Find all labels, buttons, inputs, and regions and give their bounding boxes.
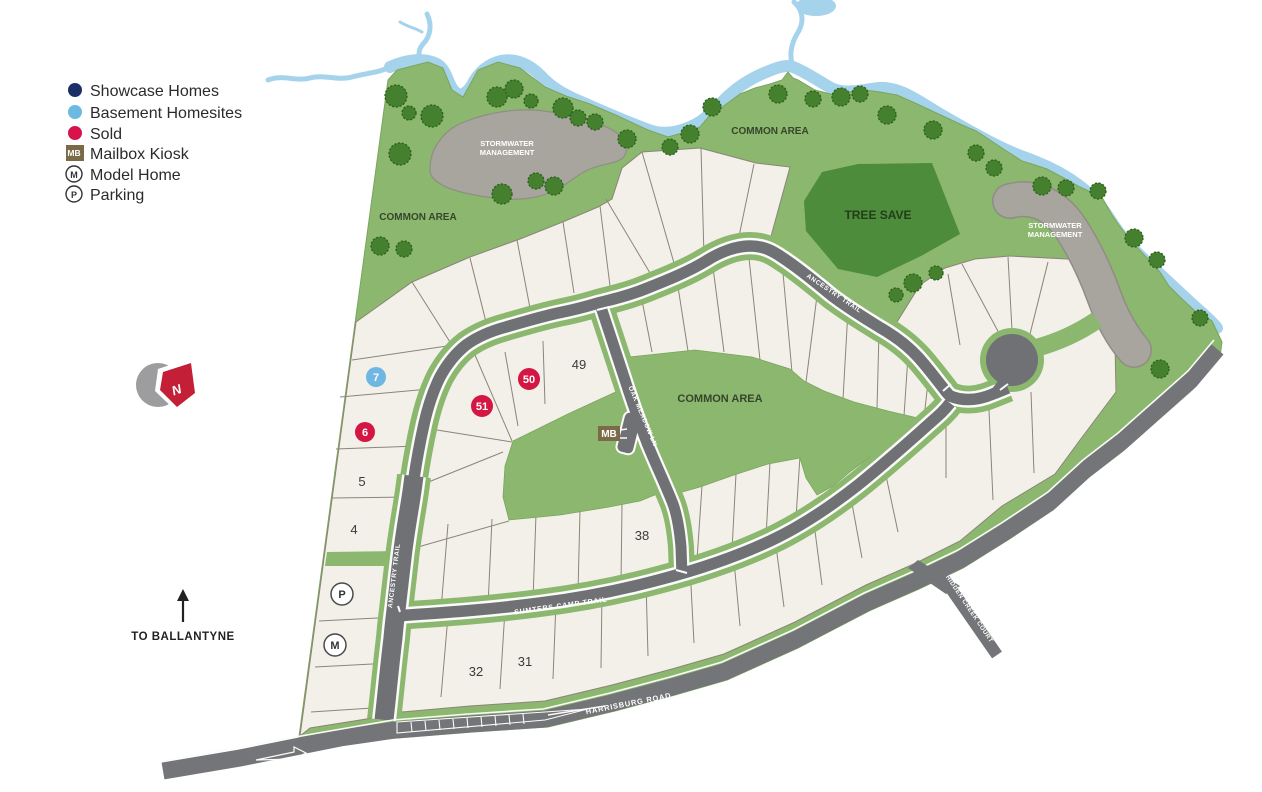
svg-text:TREE SAVE: TREE SAVE	[844, 208, 911, 222]
svg-text:49: 49	[572, 357, 586, 372]
svg-text:M: M	[330, 640, 339, 652]
svg-text:Model Home: Model Home	[90, 167, 181, 184]
svg-text:Basement Homesites: Basement Homesites	[90, 105, 242, 122]
svg-text:COMMON AREA: COMMON AREA	[677, 393, 762, 405]
svg-text:4: 4	[350, 522, 357, 537]
svg-text:P: P	[338, 589, 345, 601]
svg-text:6: 6	[362, 427, 368, 439]
svg-text:COMMON AREA: COMMON AREA	[731, 126, 808, 137]
svg-text:MANAGEMENT: MANAGEMENT	[480, 148, 535, 157]
svg-text:32: 32	[469, 664, 483, 679]
svg-text:51: 51	[476, 401, 488, 413]
svg-text:TO BALLANTYNE: TO BALLANTYNE	[131, 631, 234, 643]
svg-text:M: M	[70, 170, 78, 180]
svg-text:MANAGEMENT: MANAGEMENT	[1028, 230, 1083, 239]
svg-text:7: 7	[373, 372, 379, 384]
svg-text:Showcase Homes: Showcase Homes	[90, 83, 219, 100]
svg-text:STORMWATER: STORMWATER	[1028, 221, 1082, 230]
svg-text:5: 5	[358, 474, 365, 489]
svg-text:Sold: Sold	[90, 126, 122, 143]
svg-text:MB: MB	[601, 429, 617, 440]
svg-text:COMMON AREA: COMMON AREA	[379, 212, 456, 223]
svg-text:HIDDEN CREEK COURT: HIDDEN CREEK COURT	[944, 574, 994, 644]
svg-text:Mailbox Kiosk: Mailbox Kiosk	[90, 146, 190, 163]
svg-text:Parking: Parking	[90, 187, 144, 204]
svg-text:STORMWATER: STORMWATER	[480, 139, 534, 148]
svg-text:31: 31	[518, 654, 532, 669]
svg-text:50: 50	[523, 374, 535, 386]
svg-text:P: P	[71, 190, 77, 200]
svg-text:MB: MB	[67, 148, 80, 158]
svg-text:38: 38	[635, 528, 649, 543]
